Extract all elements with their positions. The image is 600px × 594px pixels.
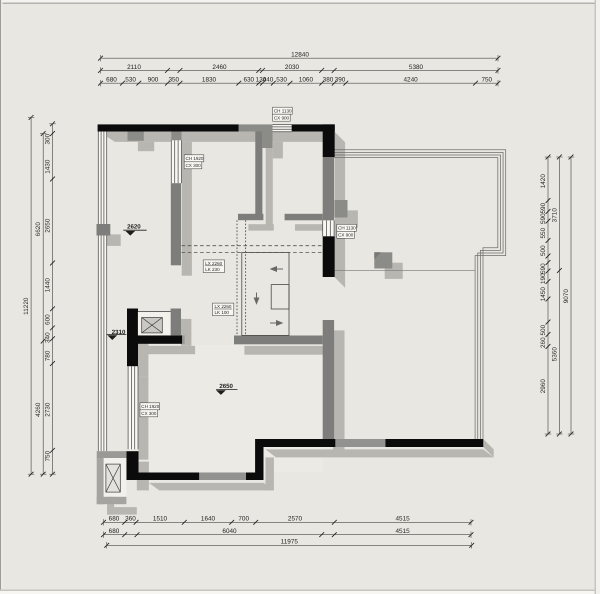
svg-text:190: 190 — [540, 273, 547, 284]
svg-text:LK 100: LK 100 — [215, 310, 230, 315]
svg-text:CH 1130: CH 1130 — [338, 226, 356, 231]
svg-text:680: 680 — [109, 528, 120, 535]
svg-text:2460: 2460 — [212, 64, 227, 71]
svg-text:360: 360 — [125, 516, 136, 523]
svg-text:1450: 1450 — [540, 287, 547, 302]
svg-text:900: 900 — [148, 77, 159, 84]
svg-text:680: 680 — [109, 516, 120, 523]
svg-text:590: 590 — [540, 202, 547, 213]
svg-text:300: 300 — [45, 133, 52, 144]
svg-text:530: 530 — [125, 77, 136, 84]
svg-text:11975: 11975 — [281, 539, 299, 546]
svg-text:260: 260 — [540, 337, 547, 348]
svg-text:CX 900: CX 900 — [338, 233, 354, 238]
svg-text:440: 440 — [263, 77, 274, 84]
svg-text:500: 500 — [540, 245, 547, 256]
svg-text:530: 530 — [276, 77, 287, 84]
svg-text:5360: 5360 — [551, 347, 558, 362]
svg-text:CX 300: CX 300 — [186, 163, 202, 168]
svg-text:2620: 2620 — [127, 224, 141, 231]
svg-text:600: 600 — [45, 314, 52, 325]
svg-text:380: 380 — [323, 77, 334, 84]
svg-text:5380: 5380 — [409, 64, 424, 71]
svg-text:CH 1130: CH 1130 — [274, 108, 292, 113]
svg-text:680: 680 — [106, 77, 117, 84]
svg-text:340: 340 — [45, 332, 52, 343]
svg-text:4515: 4515 — [395, 516, 410, 523]
svg-text:2030: 2030 — [285, 64, 300, 71]
svg-text:CX 900: CX 900 — [274, 115, 290, 120]
svg-text:350: 350 — [168, 77, 179, 84]
svg-text:590: 590 — [540, 213, 547, 224]
svg-text:2730: 2730 — [45, 402, 52, 417]
svg-text:1430: 1430 — [45, 159, 52, 174]
svg-text:550: 550 — [540, 227, 547, 238]
svg-text:1440: 1440 — [45, 278, 52, 293]
svg-text:4240: 4240 — [403, 77, 418, 84]
svg-text:CH 1920: CH 1920 — [141, 404, 159, 409]
svg-text:CX 300: CX 300 — [141, 411, 157, 416]
svg-text:9070: 9070 — [563, 289, 570, 304]
svg-text:500: 500 — [540, 324, 547, 335]
svg-text:2960: 2960 — [540, 379, 547, 394]
svg-text:CH 1920: CH 1920 — [186, 156, 204, 161]
svg-text:1420: 1420 — [540, 174, 547, 189]
svg-text:11220: 11220 — [23, 297, 30, 315]
svg-text:LX 2260: LX 2260 — [205, 261, 222, 266]
svg-text:2310: 2310 — [112, 329, 126, 336]
svg-text:780: 780 — [45, 350, 52, 361]
svg-text:630: 630 — [243, 77, 254, 84]
svg-text:12840: 12840 — [291, 52, 309, 59]
svg-text:LK 230: LK 230 — [205, 267, 220, 272]
svg-text:750: 750 — [481, 77, 492, 84]
svg-text:2110: 2110 — [127, 64, 141, 71]
svg-text:2570: 2570 — [288, 516, 303, 523]
svg-text:1640: 1640 — [201, 516, 216, 523]
svg-text:2650: 2650 — [45, 218, 52, 233]
svg-text:590: 590 — [540, 263, 547, 274]
svg-text:1060: 1060 — [299, 77, 314, 84]
svg-text:1510: 1510 — [153, 516, 168, 523]
svg-text:4515: 4515 — [395, 528, 410, 535]
svg-text:LX 2260: LX 2260 — [215, 304, 232, 309]
svg-text:6040: 6040 — [222, 528, 237, 535]
svg-text:1830: 1830 — [202, 77, 217, 84]
svg-text:700: 700 — [238, 516, 249, 523]
svg-text:3710: 3710 — [551, 208, 558, 223]
svg-text:750: 750 — [45, 450, 52, 461]
svg-text:6620: 6620 — [35, 222, 42, 237]
svg-text:4260: 4260 — [35, 402, 42, 417]
svg-text:390: 390 — [335, 77, 346, 84]
